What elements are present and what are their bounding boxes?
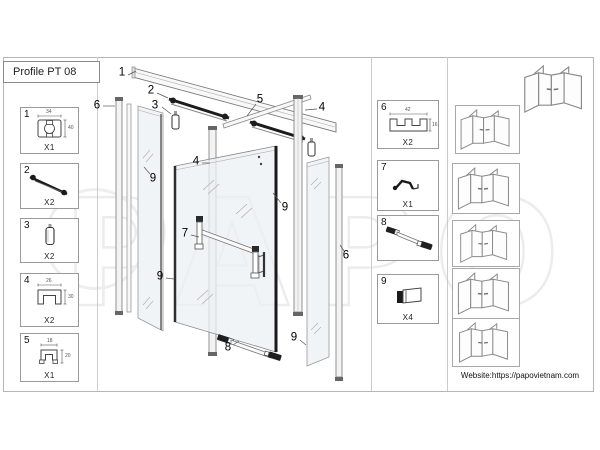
callout-4-right: 4 (319, 102, 325, 114)
callout-1: 1 (119, 67, 125, 79)
callout-9-right-top: 9 (282, 202, 288, 214)
right-side-profile (335, 164, 343, 381)
callout-6-right: 6 (343, 250, 349, 262)
callout-6-left: 6 (94, 100, 100, 112)
right-wall-profile (293, 95, 303, 316)
door-glass-panel (175, 146, 276, 352)
left-glass-panel (138, 106, 163, 331)
title-box: Profile PT 08 (3, 61, 100, 83)
callout-2: 2 (148, 85, 154, 97)
callout-9-right-bottom: 9 (291, 332, 297, 344)
callout-3: 3 (152, 100, 158, 112)
page-title: Profile PT 08 (13, 66, 76, 78)
callout-9-left-bottom: 9 (157, 271, 163, 283)
callout-7: 7 (182, 228, 188, 240)
callout-8: 8 (225, 342, 231, 354)
stopper-cylinder-b (308, 138, 315, 156)
stopper-cylinder-a (172, 111, 179, 129)
website-text: Website:https://papovietnam.com (447, 371, 593, 380)
left-wall-profiles (115, 97, 131, 315)
callout-5: 5 (257, 94, 263, 106)
right-glass-panel (307, 157, 329, 366)
callout-4-mid: 4 (193, 156, 199, 168)
callout-9-left-top: 9 (150, 173, 156, 185)
